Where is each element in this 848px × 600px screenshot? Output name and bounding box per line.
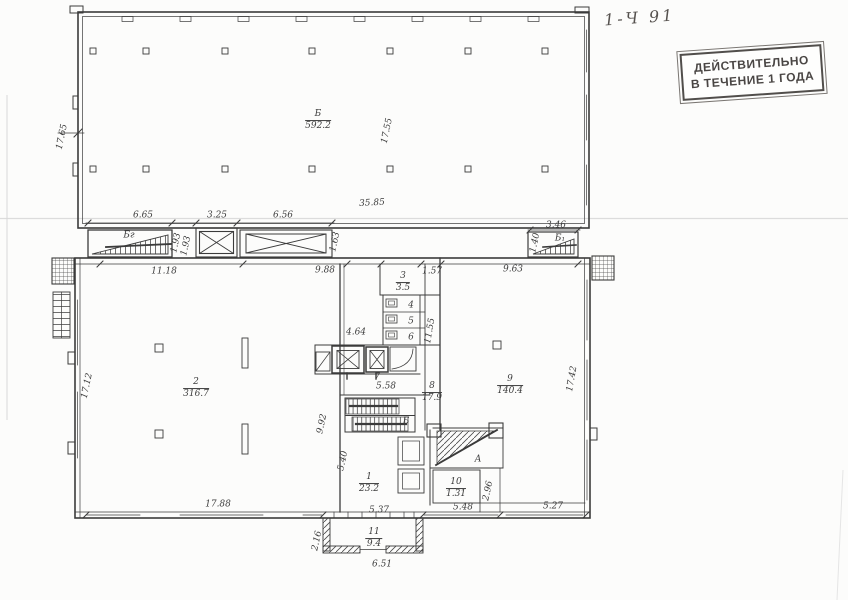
room-1: 123.2 xyxy=(359,473,379,495)
dim-1-57: 1.57 xyxy=(422,267,442,276)
stair-label-b: Б xyxy=(403,417,410,426)
room-8-area: 17.9 xyxy=(422,394,442,404)
dim-1-63: 1.63 xyxy=(329,231,342,253)
ramp-label-bg: Бг xyxy=(123,231,134,240)
dim-9-63: 9.63 xyxy=(503,265,523,274)
dim-3-25: 3.25 xyxy=(207,211,227,220)
dim-9-88: 9.88 xyxy=(315,266,335,275)
room-5: 5 xyxy=(408,317,414,326)
room-9-number: 9 xyxy=(497,375,523,386)
room-2-number: 2 xyxy=(183,378,209,389)
room-4: 4 xyxy=(408,301,414,310)
dim-5-40: 5.40 xyxy=(337,450,350,472)
dim-1-40: 1.40 xyxy=(529,232,542,254)
room-3-number: 3 xyxy=(396,272,410,283)
dim-11-55: 11.55 xyxy=(424,317,438,344)
room-11-area: 9.4 xyxy=(365,540,382,550)
room-2: 2316.7 xyxy=(183,378,209,400)
room-9-area: 140.4 xyxy=(497,387,523,397)
room-3: 33.5 xyxy=(396,272,410,294)
validity-stamp: ДЕЙСТВИТЕЛЬНО В ТЕЧЕНИЕ 1 ГОДА xyxy=(680,44,825,101)
dim-17-55: 17.55 xyxy=(381,117,396,144)
scanned-floorplan-page: Б592.217.5517.656.653.256.5635.85БгБ₁3.4… xyxy=(0,0,848,600)
room-10-number: 10 xyxy=(446,478,466,489)
dim-2-96: 2.96 xyxy=(482,480,495,502)
dim-9-92: 9.92 xyxy=(316,413,329,435)
dim-17-42: 17.42 xyxy=(566,365,580,392)
room-1-number: 1 xyxy=(359,473,379,484)
ramp-label-b1: Б₁ xyxy=(555,234,565,243)
room-b-upper: Б592.2 xyxy=(305,110,331,132)
dim-17-88: 17.88 xyxy=(205,500,231,509)
dim-17-12: 17.12 xyxy=(81,372,96,399)
room-2-area: 316.7 xyxy=(183,390,209,400)
room-9: 9140.4 xyxy=(497,375,523,397)
room-8-number: 8 xyxy=(422,382,442,393)
dim-6-56: 6.56 xyxy=(273,211,293,220)
dim-5-27: 5.27 xyxy=(543,502,563,511)
stair-label-a: А xyxy=(475,455,482,464)
room-3-area: 3.5 xyxy=(396,284,410,294)
dim-6-51: 6.51 xyxy=(372,560,392,569)
dim-17-65: 17.65 xyxy=(56,123,71,150)
room-10-area: 1.31 xyxy=(446,490,466,500)
dim-1-93-b: 1.93 xyxy=(180,235,193,257)
room-11-number: 11 xyxy=(365,528,382,539)
room-1-area: 23.2 xyxy=(359,485,379,495)
room-8: 817.9 xyxy=(422,382,442,404)
room-11: 119.4 xyxy=(365,528,382,550)
dim-5-48: 5.48 xyxy=(453,503,473,512)
dim-35-85: 35.85 xyxy=(359,199,385,210)
dim-5-37: 5.37 xyxy=(369,506,389,515)
dim-4-64: 4.64 xyxy=(346,328,366,337)
room-b-upper-area: 592.2 xyxy=(305,122,331,132)
dim-5-58: 5.58 xyxy=(376,382,396,391)
dim-3-46: 3.46 xyxy=(546,221,566,230)
dim-2-16: 2.16 xyxy=(311,530,324,552)
room-10: 101.31 xyxy=(446,478,466,500)
room-6: 6 xyxy=(408,333,414,342)
room-b-upper-number: Б xyxy=(305,110,331,121)
dim-11-18: 11.18 xyxy=(151,267,177,276)
dim-6-65: 6.65 xyxy=(133,211,153,220)
